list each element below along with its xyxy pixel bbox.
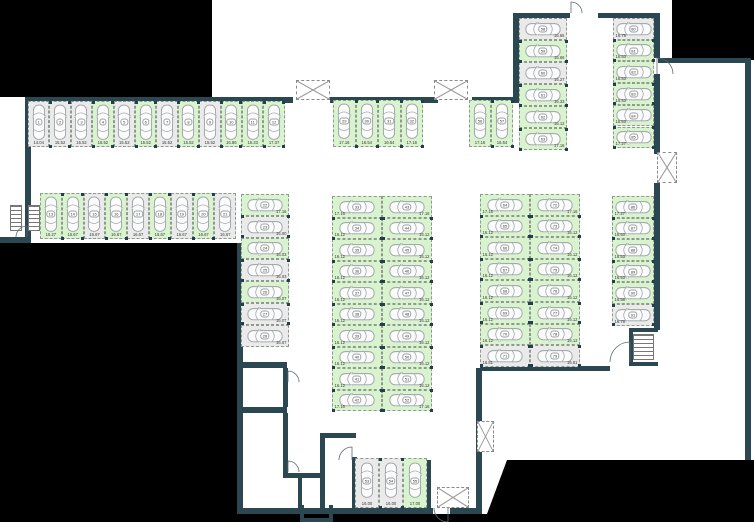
space-number: 1 <box>35 118 42 125</box>
parking-space[interactable]: 114.04 <box>28 101 49 147</box>
space-number: 20 <box>199 210 208 217</box>
column-marker-dot <box>111 101 114 104</box>
space-number: 14 <box>68 210 77 217</box>
parking-space[interactable]: 2316.00 <box>241 216 289 238</box>
column-marker-dot <box>530 302 533 305</box>
parking-space[interactable]: 2516.03 <box>241 259 289 281</box>
column-marker-dot <box>241 279 244 282</box>
space-number: 90 <box>628 290 637 297</box>
space-number: 52 <box>402 397 411 404</box>
parking-space[interactable]: 7816.12 <box>530 324 580 346</box>
space-number: 43 <box>402 203 411 210</box>
space-dimension: 16.12 <box>419 275 429 280</box>
space-number: 89 <box>628 268 637 275</box>
space-dimension: 17.16 <box>419 211 429 216</box>
column-marker-dot <box>652 39 655 42</box>
column-marker-dot <box>401 458 404 461</box>
space-number: 36 <box>352 268 361 275</box>
parking-space[interactable]: 5217.16 <box>382 390 432 412</box>
space-number: 7 <box>163 118 170 125</box>
parking-space[interactable]: 1916.67 <box>171 193 193 239</box>
space-dimension: 17.16 <box>402 140 423 145</box>
column-marker-dot <box>382 346 385 349</box>
space-number: 12 <box>269 118 278 125</box>
column-marker-dot <box>519 148 522 151</box>
column-marker-dot <box>519 104 522 107</box>
column-marker-dot <box>480 215 483 218</box>
space-number: 61 <box>538 92 547 99</box>
column-marker-dot <box>519 128 522 131</box>
space-dimension: 14.04 <box>29 140 48 145</box>
parking-space[interactable]: 5816.65 <box>519 18 567 40</box>
parking-space[interactable]: 1716.67 <box>127 193 149 239</box>
space-number: 5 <box>121 118 128 125</box>
wall-segment <box>237 508 433 514</box>
space-number: 27 <box>260 310 269 317</box>
parking-space[interactable]: 9116.78 <box>612 304 654 326</box>
space-dimension: 16.12 <box>335 297 345 302</box>
space-number: 91 <box>628 311 637 318</box>
parking-space[interactable]: 1316.27 <box>40 193 62 239</box>
column-marker-dot <box>125 237 128 240</box>
parking-space[interactable]: 7316.12 <box>530 216 580 238</box>
column-marker-dot <box>511 100 514 103</box>
parking-space[interactable]: 8816.53 <box>612 239 654 261</box>
column-marker-dot <box>421 145 424 148</box>
parking-space[interactable]: 715.52 <box>156 101 177 147</box>
shaft-box <box>434 80 468 100</box>
column-marker-dot <box>421 100 424 103</box>
column-marker-dot <box>612 280 615 283</box>
column-marker-dot <box>382 237 385 240</box>
column-marker-dot <box>263 145 266 148</box>
parking-space[interactable]: 4317.16 <box>382 196 432 218</box>
column-marker-dot <box>135 101 138 104</box>
parking-space[interactable]: 2917.16 <box>333 100 356 147</box>
space-dimension: 15.52 <box>72 140 91 145</box>
space-dimension: 16.03 <box>276 252 286 257</box>
column-marker-dot <box>652 237 655 240</box>
column-marker-dot <box>400 100 403 103</box>
parking-space[interactable]: 8316.53 <box>613 83 654 105</box>
parking-space[interactable]: 4816.12 <box>382 304 432 326</box>
column-marker-dot <box>197 101 200 104</box>
parking-space[interactable]: 215.52 <box>49 101 70 147</box>
column-marker-dot <box>61 193 64 196</box>
parking-space[interactable]: 4416.12 <box>382 218 432 240</box>
parking-space[interactable]: 2716.07 <box>241 303 289 325</box>
space-dimension: 16.67 <box>172 232 192 237</box>
space-dimension: 16.12 <box>567 252 577 257</box>
space-dimension: 16.12 <box>419 232 429 237</box>
column-marker-dot <box>491 100 494 103</box>
parking-space[interactable]: 6317.16 <box>519 128 567 150</box>
column-marker-dot <box>519 40 522 43</box>
space-number: 78 <box>550 331 559 338</box>
column-marker-dot <box>168 237 171 240</box>
column-marker-dot <box>652 323 655 326</box>
space-dimension: 16.67 <box>215 232 235 237</box>
space-dimension: 15.52 <box>136 140 155 145</box>
space-dimension: 16.12 <box>483 230 493 235</box>
column-marker-dot <box>530 321 533 324</box>
parking-space[interactable]: 3816.12 <box>332 304 382 326</box>
space-dimension: 16.86 <box>222 140 241 145</box>
parking-space[interactable]: 2116.67 <box>214 193 236 239</box>
parking-space[interactable]: 1516.67 <box>84 193 106 239</box>
space-dimension: 16.12 <box>483 295 493 300</box>
parking-space[interactable]: 3916.12 <box>332 325 382 347</box>
space-dimension: 15.52 <box>115 140 134 145</box>
column-marker-dot <box>530 278 533 281</box>
space-dimension: 16.67 <box>106 232 126 237</box>
column-marker-dot <box>68 145 71 148</box>
parking-space[interactable]: 3716.12 <box>332 282 382 304</box>
space-number: 74 <box>550 244 559 251</box>
space-dimension: 16.12 <box>335 361 345 366</box>
space-dimension: 17.16 <box>483 209 493 214</box>
column-marker-dot <box>382 389 385 392</box>
column-marker-dot <box>212 193 215 196</box>
space-dimension: 16.12 <box>419 361 429 366</box>
parking-space[interactable]: 2816.07 <box>241 325 289 347</box>
column-marker-dot <box>613 102 616 105</box>
column-marker-dot <box>401 506 404 509</box>
parking-space[interactable]: 5016.12 <box>382 347 432 369</box>
parking-space[interactable]: 7016.12 <box>480 324 530 346</box>
space-number: 72 <box>550 201 559 208</box>
parking-space[interactable]: 1217.37 <box>263 101 284 147</box>
space-dimension: 16.12 <box>483 338 493 343</box>
parking-space[interactable]: 415.52 <box>92 101 113 147</box>
parking-space[interactable]: 4217.16 <box>332 390 382 412</box>
column-marker-dot <box>192 193 195 196</box>
space-number: 77 <box>550 309 559 316</box>
column-marker-dot <box>68 101 71 104</box>
space-number: 56 <box>475 118 484 125</box>
column-marker-dot <box>565 148 568 151</box>
column-marker-dot <box>613 83 616 86</box>
wall-segment <box>629 328 658 332</box>
space-dimension: 16.12 <box>419 340 429 345</box>
space-dimension: 16.12 <box>567 338 577 343</box>
parking-space[interactable]: 1816.67 <box>149 193 171 239</box>
parking-space[interactable]: 2616.07 <box>241 281 289 303</box>
parking-space[interactable]: 7217.16 <box>530 194 580 216</box>
column-marker-dot <box>530 258 533 261</box>
space-dimension: 16.54 <box>379 140 400 145</box>
parking-space[interactable]: 4116.12 <box>332 368 382 390</box>
column-marker-dot <box>612 323 615 326</box>
column-marker-dot <box>519 84 522 87</box>
space-dimension: 16.12 <box>335 254 345 259</box>
column-marker-dot <box>652 102 655 105</box>
column-marker-dot <box>652 280 655 283</box>
parking-space[interactable]: 3416.12 <box>332 218 382 240</box>
column-marker-dot <box>612 260 615 263</box>
space-number: 66 <box>500 244 509 251</box>
space-number: 4 <box>99 118 106 125</box>
parking-space[interactable]: 8216.53 <box>613 61 654 83</box>
space-number: 80 <box>629 25 638 32</box>
column-marker-dot <box>332 260 335 263</box>
parking-space[interactable]: 7516.12 <box>530 259 580 281</box>
wall-segment <box>320 433 356 438</box>
parking-space[interactable]: 6816.12 <box>480 280 530 302</box>
column-marker-dot <box>241 215 244 218</box>
space-dimension: 16.54 <box>492 140 512 145</box>
space-number: 29 <box>340 118 349 125</box>
space-number: 49 <box>402 332 411 339</box>
parking-space[interactable]: 6116.33 <box>519 84 567 106</box>
space-dimension: 16.12 <box>554 121 564 126</box>
parking-space[interactable]: 3516.12 <box>332 239 382 261</box>
space-dimension: 16.79 <box>616 33 626 38</box>
space-dimension: 16.53 <box>615 232 625 237</box>
parking-space[interactable]: 5716.54 <box>491 100 513 147</box>
space-dimension: 15.52 <box>200 140 219 145</box>
space-number: 50 <box>402 354 411 361</box>
column-marker-dot <box>332 389 335 392</box>
column-marker-dot <box>652 83 655 86</box>
parking-space[interactable]: 5916.66 <box>519 40 567 62</box>
shaft-x-icon <box>435 81 467 99</box>
column-marker-dot <box>382 303 385 306</box>
parking-space[interactable]: 8617.27 <box>612 196 654 218</box>
column-marker-dot <box>480 302 483 305</box>
wall-segment <box>237 407 287 413</box>
space-number: 13 <box>46 210 55 217</box>
space-dimension: 16.65 <box>554 33 564 38</box>
space-dimension: 17.16 <box>554 143 564 148</box>
column-marker-dot <box>519 60 522 63</box>
shaft-box <box>657 152 677 183</box>
space-dimension: 16.53 <box>616 98 626 103</box>
parking-space[interactable]: 4716.12 <box>382 282 432 304</box>
column-marker-dot <box>613 59 616 62</box>
parking-space[interactable]: 2416.03 <box>241 238 289 260</box>
column-marker-dot <box>652 59 655 62</box>
column-marker-dot <box>480 345 483 348</box>
parking-space[interactable]: 5517.00 <box>403 458 427 508</box>
column-marker-dot <box>612 237 615 240</box>
space-number: 68 <box>500 288 509 295</box>
parking-space[interactable]: 6417.16 <box>480 194 530 216</box>
door-swing <box>339 447 352 460</box>
parking-space[interactable]: 7616.12 <box>530 280 580 302</box>
shaft-x-icon <box>438 488 468 507</box>
parking-space[interactable]: 3317.16 <box>332 196 382 218</box>
space-number: 8 <box>185 118 192 125</box>
column-marker-dot <box>480 235 483 238</box>
parking-space[interactable]: 3116.54 <box>378 100 401 147</box>
column-marker-dot <box>613 39 616 42</box>
parking-space[interactable]: 7416.12 <box>530 237 580 259</box>
column-marker-dot <box>287 322 290 325</box>
space-dimension: 16.53 <box>616 76 626 81</box>
column-marker-dot <box>105 193 108 196</box>
space-number: 35 <box>352 246 361 253</box>
parking-space[interactable]: 7116.81 <box>480 345 530 367</box>
parking-space[interactable]: 2016.67 <box>193 193 215 239</box>
parking-space[interactable]: 3217.16 <box>401 100 424 147</box>
column-marker-dot <box>241 235 244 238</box>
space-dimension: 17.16 <box>334 140 355 145</box>
space-number: 84 <box>629 112 638 119</box>
space-dimension: 16.12 <box>567 230 577 235</box>
space-dimension: 17.16 <box>276 209 286 214</box>
parking-space[interactable]: 6016.27 <box>519 62 567 84</box>
wall-segment <box>654 13 660 58</box>
parking-space[interactable]: 3616.12 <box>332 261 382 283</box>
parking-space[interactable]: 8517.27 <box>613 127 654 149</box>
parking-space[interactable]: 7916.81 <box>530 345 580 367</box>
column-marker-dot <box>480 258 483 261</box>
column-marker-dot <box>282 145 285 148</box>
parking-space[interactable]: 7716.12 <box>530 302 580 324</box>
column-marker-dot <box>332 346 335 349</box>
column-marker-dot <box>177 145 180 148</box>
column-marker-dot <box>332 323 335 326</box>
parking-space[interactable]: 6516.12 <box>480 216 530 238</box>
space-dimension: 16.12 <box>419 254 429 259</box>
space-dimension: 16.12 <box>335 232 345 237</box>
space-number: 64 <box>500 201 509 208</box>
space-number: 57 <box>497 118 506 125</box>
column-marker-dot <box>376 145 379 148</box>
wall-segment <box>745 63 751 460</box>
door-swing <box>288 461 299 472</box>
column-marker-dot <box>332 409 335 412</box>
space-dimension: 16.33 <box>243 140 262 145</box>
column-marker-dot <box>355 145 358 148</box>
space-dimension: 16.00 <box>356 501 378 506</box>
parking-space[interactable]: 8716.53 <box>612 218 654 240</box>
parking-space[interactable]: 5316.00 <box>355 458 379 508</box>
space-number: 58 <box>538 26 547 33</box>
column-marker-dot <box>565 128 568 131</box>
parking-space[interactable]: 1016.86 <box>221 101 242 147</box>
parking-space[interactable]: 6716.12 <box>480 259 530 281</box>
column-marker-dot <box>612 217 615 220</box>
column-marker-dot <box>105 237 108 240</box>
column-marker-dot <box>382 260 385 263</box>
column-marker-dot <box>530 345 533 348</box>
space-dimension: 16.00 <box>276 231 286 236</box>
space-number: 21 <box>221 210 230 217</box>
parking-space[interactable]: 6916.12 <box>480 302 530 324</box>
shaft-box <box>296 80 330 100</box>
parking-space[interactable]: 1416.67 <box>62 193 84 239</box>
parking-space[interactable]: 315.52 <box>71 101 92 147</box>
parking-space[interactable]: 4616.12 <box>382 261 432 283</box>
space-number: 67 <box>500 266 509 273</box>
space-dimension: 16.67 <box>150 232 170 237</box>
column-marker-dot <box>197 145 200 148</box>
parking-space[interactable]: 5617.16 <box>469 100 491 147</box>
column-marker-dot <box>430 323 433 326</box>
parking-space[interactable]: 5416.00 <box>379 458 403 508</box>
parking-space[interactable]: 9016.58 <box>612 282 654 304</box>
parking-space[interactable]: 2217.16 <box>241 194 289 216</box>
column-marker-dot <box>287 279 290 282</box>
door-swing <box>571 2 582 13</box>
space-dimension: 15.52 <box>157 140 176 145</box>
space-dimension: 17.16 <box>335 211 345 216</box>
column-marker-dot <box>49 101 52 104</box>
wall-segment <box>320 433 325 514</box>
column-marker-dot <box>578 215 581 218</box>
parking-space[interactable]: 8116.53 <box>613 40 654 62</box>
space-dimension: 15.52 <box>50 140 69 145</box>
column-marker-dot <box>530 364 533 367</box>
space-number: 32 <box>407 118 416 125</box>
space-number: 82 <box>629 69 638 76</box>
parking-space[interactable]: 815.52 <box>178 101 199 147</box>
column-marker-dot <box>652 126 655 129</box>
stairs-icon <box>28 205 40 231</box>
column-marker-dot <box>81 193 84 196</box>
space-number: 70 <box>500 331 509 338</box>
space-number: 42 <box>352 397 361 404</box>
column-marker-dot <box>613 146 616 149</box>
parking-space[interactable]: 4516.12 <box>382 239 432 261</box>
column-marker-dot <box>430 237 433 240</box>
shaft-x-icon <box>658 153 676 182</box>
parking-space[interactable]: 515.52 <box>114 101 135 147</box>
column-marker-dot <box>332 280 335 283</box>
parking-space[interactable]: 6216.12 <box>519 106 567 128</box>
parking-space[interactable]: 1616.67 <box>105 193 127 239</box>
parking-space[interactable]: 8416.53 <box>613 105 654 127</box>
parking-space[interactable]: 915.52 <box>199 101 220 147</box>
wall-segment <box>629 362 658 366</box>
parking-space[interactable]: 8916.53 <box>612 261 654 283</box>
column-marker-dot <box>430 366 433 369</box>
parking-space[interactable]: 6616.12 <box>480 237 530 259</box>
column-marker-dot <box>282 101 285 104</box>
space-dimension: 17.16 <box>567 209 577 214</box>
space-number: 88 <box>628 246 637 253</box>
parking-space[interactable]: 4916.12 <box>382 325 432 347</box>
parking-space[interactable]: 4016.12 <box>332 347 382 369</box>
space-dimension: 16.12 <box>419 383 429 388</box>
space-number: 51 <box>402 375 411 382</box>
parking-space[interactable]: 1116.33 <box>242 101 263 147</box>
parking-space[interactable]: 5116.12 <box>382 368 432 390</box>
column-marker-dot <box>81 237 84 240</box>
space-number: 33 <box>352 203 361 210</box>
space-number: 9 <box>206 118 213 125</box>
parking-space[interactable]: 3016.54 <box>356 100 379 147</box>
column-marker-dot <box>578 321 581 324</box>
parking-space[interactable]: 8016.79 <box>613 18 654 40</box>
door-swing <box>288 371 299 382</box>
column-marker-dot <box>212 237 215 240</box>
space-number: 10 <box>227 118 236 125</box>
column-marker-dot <box>135 145 138 148</box>
space-number: 40 <box>352 354 361 361</box>
column-marker-dot <box>430 280 433 283</box>
column-marker-dot <box>379 506 382 509</box>
parking-space[interactable]: 615.52 <box>135 101 156 147</box>
column-marker-dot <box>92 101 95 104</box>
space-number: 69 <box>500 309 509 316</box>
space-number: 60 <box>538 70 547 77</box>
column-marker-dot <box>578 235 581 238</box>
column-marker-dot <box>400 145 403 148</box>
space-number: 22 <box>260 201 269 208</box>
